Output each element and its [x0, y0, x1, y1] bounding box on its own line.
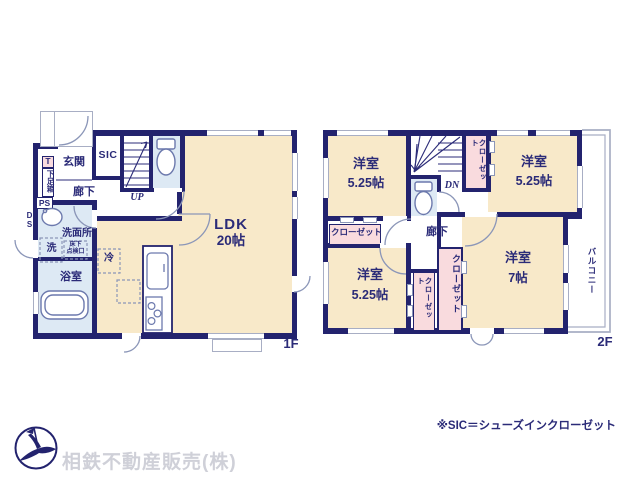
label-room-bl-name: 洋室: [340, 268, 400, 283]
window: [563, 283, 569, 310]
label-room-tr-size: 5.25帖: [504, 174, 564, 188]
window: [264, 130, 291, 136]
label-room-tl-name: 洋室: [336, 157, 396, 172]
wall: [409, 175, 441, 179]
label-balcony: バルコニー: [582, 247, 596, 305]
company-name: 相鉄不動産販売(株): [62, 447, 237, 474]
stairs-2f: [411, 136, 462, 172]
wall: [180, 130, 185, 192]
door-gap: [154, 188, 182, 192]
window: [504, 328, 544, 334]
label-floor-hatch: 床下 点検口: [64, 242, 87, 256]
window: [292, 197, 298, 219]
wall: [462, 188, 491, 192]
label-dn: DN: [440, 180, 464, 192]
label-washer: 洗: [45, 243, 58, 255]
wall: [163, 303, 172, 334]
label-floor-hatch-line1: 床下: [69, 242, 81, 248]
closet-door-mark: [489, 141, 495, 153]
label-hallway-2f: 廊下: [420, 226, 454, 239]
door-gap: [380, 243, 406, 248]
wall: [120, 136, 124, 192]
window: [323, 262, 329, 304]
window: [33, 292, 39, 314]
closet-door-mark: [489, 164, 495, 176]
wall: [36, 257, 95, 261]
label-ldk-size: 20帖: [206, 233, 256, 249]
window: [292, 153, 298, 191]
closet-door-mark: [461, 305, 467, 318]
label-room-br-size: 7帖: [488, 271, 548, 285]
label-room-br-name: 洋室: [488, 251, 548, 266]
label-room-tr-name: 洋室: [504, 155, 564, 170]
closet-door-mark: [363, 217, 377, 223]
wall: [441, 212, 465, 217]
label-floor-hatch-line2: 点検口: [66, 249, 84, 255]
label-floor-2f: 2F: [592, 335, 618, 350]
company-logo sotetsu-bird-logo: [13, 425, 59, 471]
closet-door-mark: [340, 217, 354, 223]
door-gap: [92, 210, 97, 228]
wall: [149, 130, 153, 192]
door-gap: [292, 276, 297, 292]
window: [337, 130, 388, 136]
door-gap: [383, 216, 407, 221]
label-sic: SIC: [95, 149, 121, 161]
label-ds: DS: [23, 211, 33, 233]
wall: [92, 200, 97, 210]
closet-door-mark: [407, 305, 413, 317]
window: [563, 245, 569, 273]
label-closet-mid-small: クローゼット: [416, 277, 432, 327]
closet-door-mark: [407, 284, 413, 296]
room-toilet-1f: [152, 133, 183, 191]
door-gap: [437, 192, 441, 212]
label-bathroom: 浴室: [54, 271, 88, 284]
label-closet-mid-large: クローゼット: [442, 254, 460, 326]
floorplan-canvas: 玄関 SIC T 下足箱 PS DS 廊下 UP LDK 20帖 洗面所 洗 床…: [0, 0, 640, 480]
wall: [92, 228, 97, 336]
label-ldk-name: LDK: [206, 216, 256, 233]
label-closet-left: クローゼット: [331, 228, 379, 238]
label-hallway-1f: 廊下: [68, 186, 100, 199]
label-genkan: 玄関: [58, 156, 90, 169]
entrance-porch: [54, 111, 93, 147]
window: [536, 130, 570, 136]
window: [207, 130, 258, 136]
label-floor-1f: 1F: [278, 337, 304, 352]
door-gap: [33, 240, 38, 258]
wall: [92, 176, 122, 180]
label-ps: PS: [36, 199, 53, 209]
label-fridge: 冷: [98, 253, 120, 265]
label-shoe-box: 下足箱: [43, 170, 54, 196]
terrace-step: [212, 339, 262, 352]
label-t-box: T: [42, 157, 54, 167]
window: [497, 130, 528, 136]
label-room-tl-size: 5.25帖: [336, 176, 396, 190]
door-gap: [470, 328, 494, 334]
label-up: UP: [126, 192, 148, 204]
door-gap: [465, 212, 497, 217]
label-room-bl-size: 5.25帖: [340, 288, 400, 302]
label-closet-top: クローゼット: [468, 139, 486, 187]
window: [323, 158, 329, 198]
wall: [497, 212, 582, 217]
label-washroom: 洗面所: [57, 228, 97, 240]
window: [577, 166, 583, 208]
wall: [563, 214, 568, 334]
entrance-porch: [40, 111, 55, 147]
window: [348, 328, 394, 334]
door-gap: [122, 333, 141, 339]
sic-footnote: ※SIC＝シューズインクローゼット: [436, 417, 616, 433]
closet-door-mark: [461, 261, 467, 274]
wall: [95, 216, 182, 221]
room-toilet-2f: [409, 177, 440, 216]
